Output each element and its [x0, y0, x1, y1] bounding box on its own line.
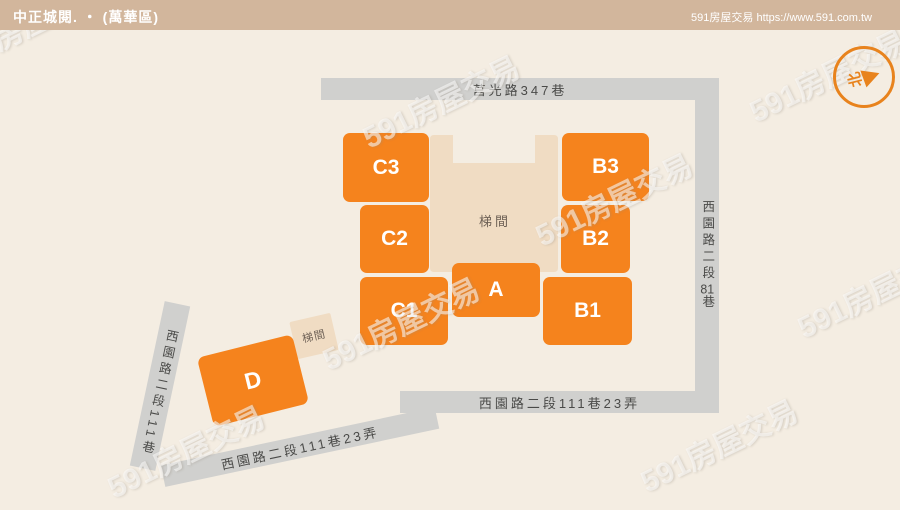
header-bar: 中正城閱. ・ (萬華區) 591房屋交易 https://www.591.co…: [0, 0, 900, 30]
road-diagonal: 西園路二段111巷23弄: [161, 407, 439, 487]
road-left-label: 西園路二段111巷: [139, 328, 178, 458]
road-right-label: 西園路二段81巷: [701, 200, 714, 312]
road-left: 西園路二段111巷: [130, 301, 190, 471]
building-unit-a[interactable]: A: [452, 263, 540, 317]
building-unit-b3[interactable]: B3: [562, 133, 649, 201]
north-arrow-icon: [861, 64, 883, 87]
building-unit-d[interactable]: D: [197, 334, 309, 427]
building-unit-b1[interactable]: B1: [543, 277, 632, 345]
stairwell-area-shape: [430, 135, 558, 272]
site-map: 中正城閱. ・ (萬華區) 591房屋交易 https://www.591.co…: [0, 0, 900, 510]
site-url: 591房屋交易 https://www.591.com.tw: [691, 9, 872, 25]
stairwell-center-label: 梯間: [459, 211, 531, 230]
building-unit-c2[interactable]: C2: [360, 205, 429, 273]
compass-inner: 北: [845, 63, 882, 91]
road-bottom-label: 西園路二段111巷23弄: [479, 393, 640, 412]
road-top-label: 莒光路347巷: [473, 80, 568, 99]
north-compass: 北: [833, 46, 895, 108]
road-top: 莒光路347巷: [321, 78, 719, 100]
building-unit-c1[interactable]: C1: [360, 277, 448, 345]
road-bottom: 西園路二段111巷23弄: [400, 391, 719, 413]
building-unit-c3[interactable]: C3: [343, 133, 429, 202]
road-diagonal-label: 西園路二段111巷23弄: [219, 421, 381, 473]
watermark: 591房屋交易: [789, 233, 900, 347]
building-unit-b2[interactable]: B2: [561, 205, 630, 273]
road-right: 西園路二段81巷: [695, 78, 719, 413]
page-title: 中正城閱. ・ (萬華區): [13, 7, 159, 27]
